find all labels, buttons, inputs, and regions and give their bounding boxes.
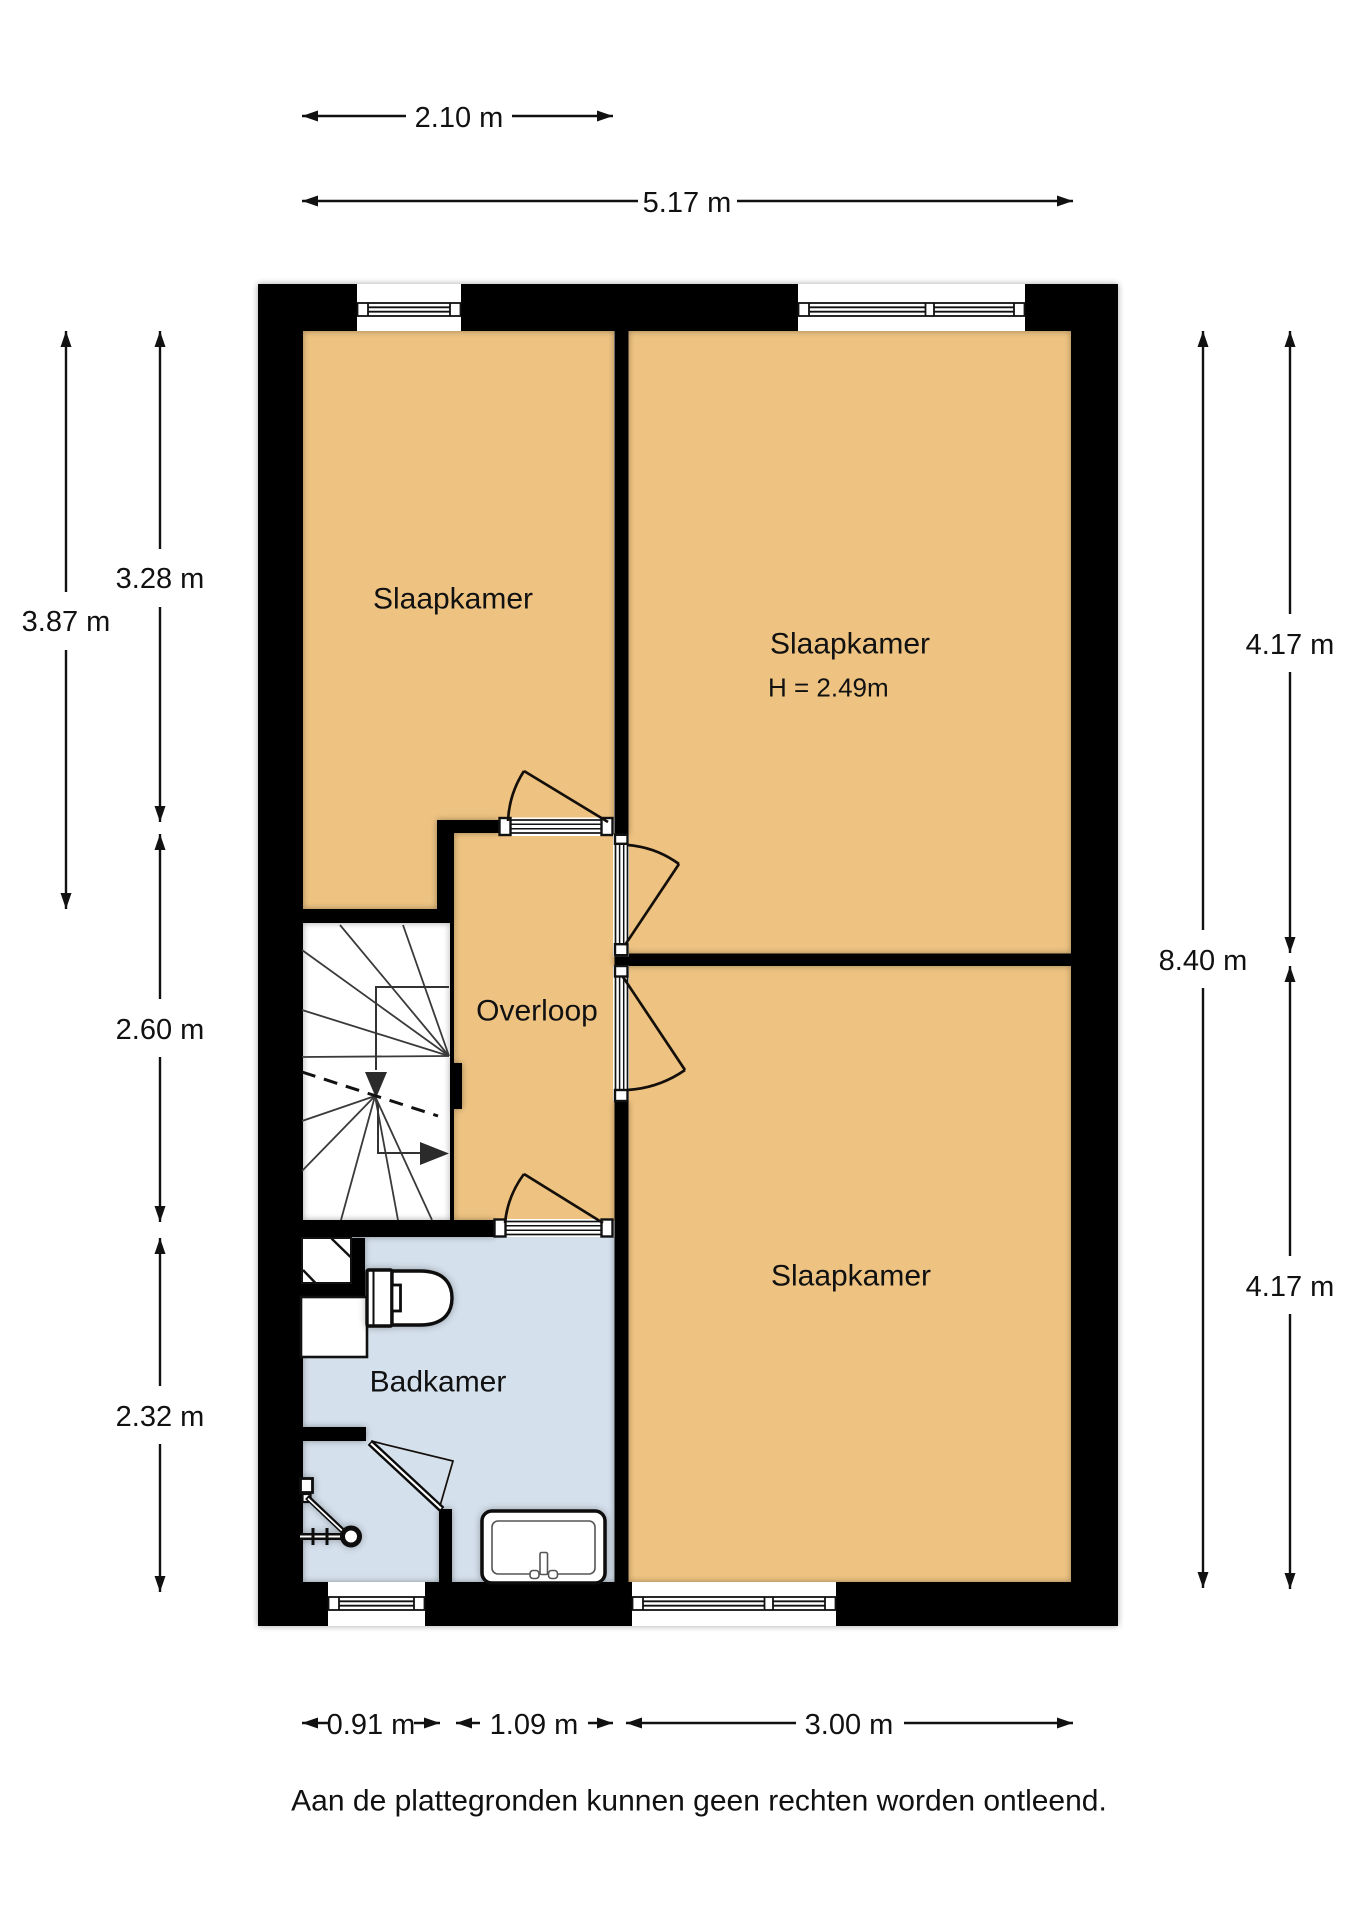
svg-text:Badkamer: Badkamer xyxy=(370,1366,507,1399)
svg-text:H = 2.49m: H = 2.49m xyxy=(768,673,889,703)
svg-text:4.17 m: 4.17 m xyxy=(1246,629,1335,661)
svg-text:2.10 m: 2.10 m xyxy=(415,102,504,134)
svg-text:3.87 m: 3.87 m xyxy=(22,606,111,638)
svg-text:Slaapkamer: Slaapkamer xyxy=(373,583,533,616)
svg-text:3.28 m: 3.28 m xyxy=(116,563,205,595)
svg-text:0.91 m: 0.91 m xyxy=(327,1709,416,1741)
svg-text:Aan de plattegronden kunnen ge: Aan de plattegronden kunnen geen rechten… xyxy=(291,1785,1107,1818)
svg-text:3.00 m: 3.00 m xyxy=(805,1709,894,1741)
svg-text:Overloop: Overloop xyxy=(476,995,598,1028)
svg-text:4.17 m: 4.17 m xyxy=(1246,1271,1335,1303)
svg-text:8.40 m: 8.40 m xyxy=(1159,945,1248,977)
svg-text:1.09 m: 1.09 m xyxy=(490,1709,579,1741)
svg-text:Slaapkamer: Slaapkamer xyxy=(771,1260,931,1293)
svg-text:Slaapkamer: Slaapkamer xyxy=(770,628,930,661)
svg-text:2.32 m: 2.32 m xyxy=(116,1401,205,1433)
svg-text:5.17 m: 5.17 m xyxy=(643,187,732,219)
svg-text:2.60 m: 2.60 m xyxy=(116,1014,205,1046)
